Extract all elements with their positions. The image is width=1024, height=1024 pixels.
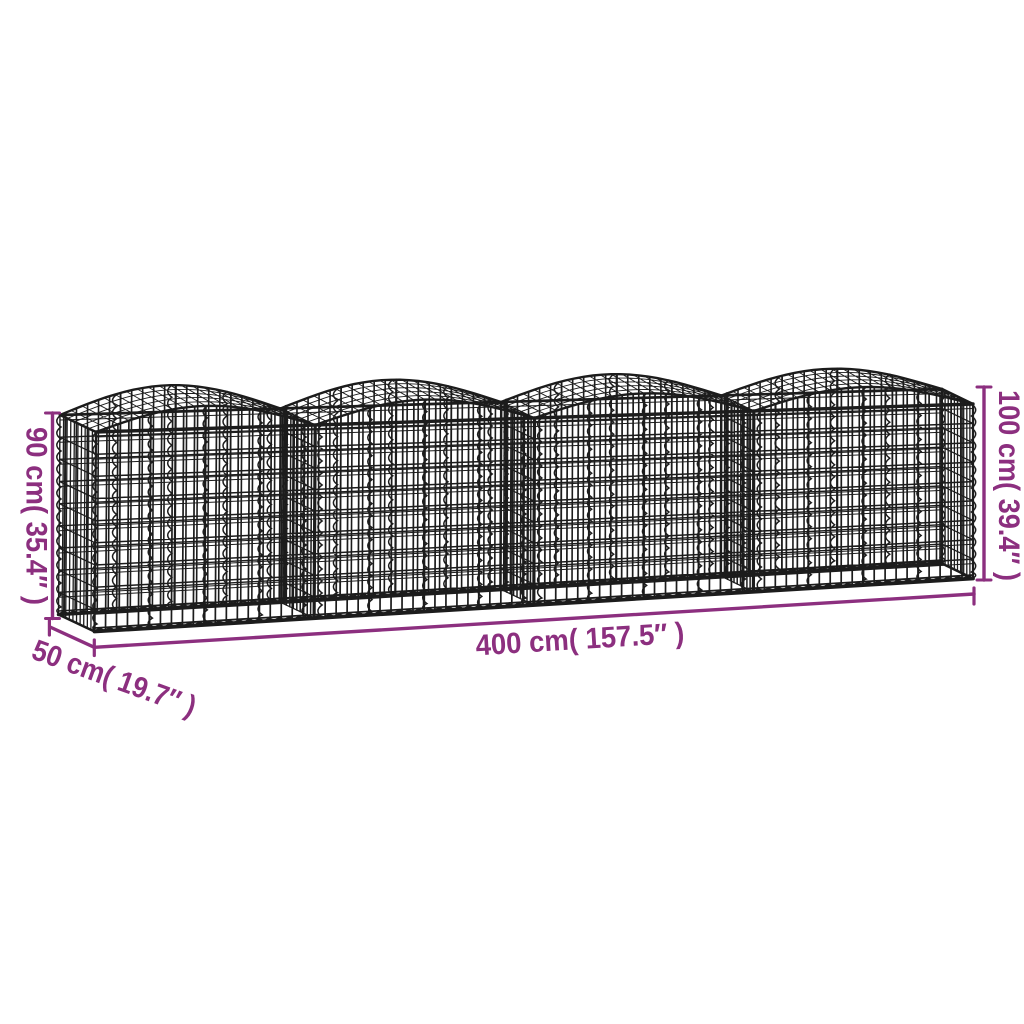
svg-text:90 cm( 35.4″ ): 90 cm( 35.4″ )	[20, 427, 53, 605]
svg-text:100 cm( 39.4″ ): 100 cm( 39.4″ )	[992, 390, 1024, 581]
